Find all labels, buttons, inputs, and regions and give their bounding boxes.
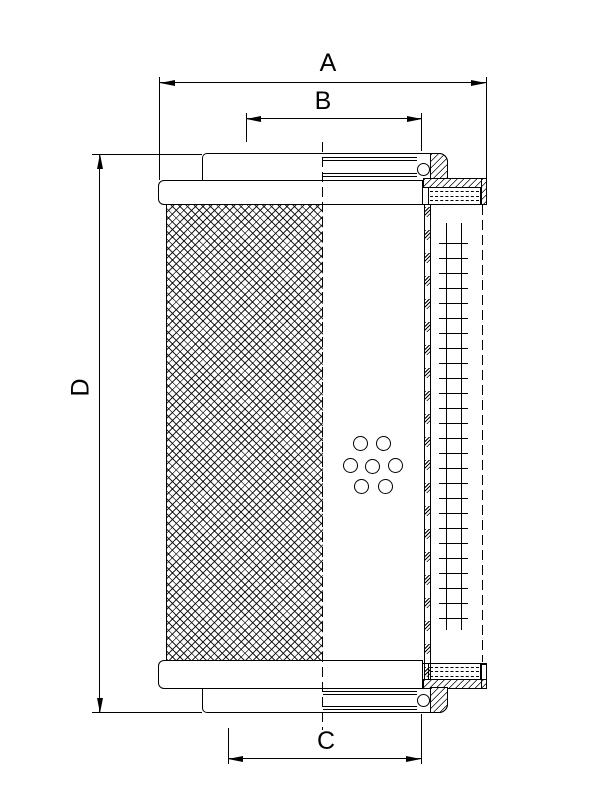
support-tube-rung [439, 423, 468, 424]
bottom-flange-outer-wall [481, 664, 487, 689]
core-wall-segment [425, 391, 430, 401]
hidden-outer-edge [482, 205, 483, 662]
support-tube-rung [439, 288, 468, 289]
bottom-end-cap [158, 660, 423, 689]
support-tube-rung [439, 453, 468, 454]
support-tube-rung [439, 393, 468, 394]
support-tube-rung [439, 333, 468, 334]
core-wall-segment [425, 437, 430, 447]
support-tube-rung [439, 543, 468, 544]
core-wall-segment [425, 552, 430, 562]
centerline [322, 142, 323, 730]
dimension-d-label: D [69, 371, 94, 405]
core-tube-section-strip [424, 204, 431, 680]
support-tube-rung [439, 348, 468, 349]
top-end-cap [158, 180, 423, 205]
support-tube-rung [439, 498, 468, 499]
support-tube-line [461, 223, 462, 630]
groove-line [323, 173, 417, 174]
support-tube-rung [439, 363, 468, 364]
support-tube-rung [439, 303, 468, 304]
core-wall-segment [425, 322, 430, 332]
perforation-hole [353, 436, 368, 451]
support-tube-rung [439, 558, 468, 559]
core-wall-segment [425, 460, 430, 470]
core-wall-segment [425, 621, 430, 631]
perforation-hole [378, 479, 393, 494]
dimension-a-line [160, 82, 486, 83]
extension-line [92, 154, 202, 155]
dimension-d-arrow [97, 698, 103, 713]
dimension-a-label: A [300, 51, 356, 76]
groove-line [323, 176, 417, 177]
dimension-c-arrow [228, 756, 243, 762]
perforation-hole [354, 479, 369, 494]
support-tube-rung [439, 513, 468, 514]
core-wall-segment [425, 483, 430, 493]
core-wall-segment [425, 253, 430, 263]
core-wall-segment [425, 506, 430, 516]
support-tube-rung [439, 618, 468, 619]
extension-line [486, 77, 487, 178]
dimension-d-arrow [97, 154, 103, 169]
core-wall-segment [425, 414, 430, 424]
perforation-hole [388, 458, 403, 473]
extension-line [92, 712, 202, 713]
gasket-dash-line [430, 200, 479, 201]
bottom-o-ring [417, 694, 430, 707]
dimension-b-arrow [246, 116, 261, 122]
extension-line [421, 113, 422, 151]
extension-line [421, 714, 422, 764]
perforation-hole [343, 458, 358, 473]
gasket-dash-line [430, 667, 479, 668]
support-tube-line [446, 223, 447, 630]
gasket-dash-line [430, 671, 479, 672]
groove-line [323, 691, 417, 692]
support-tube-rung [439, 603, 468, 604]
groove-line [323, 706, 417, 707]
gasket-dash-line [430, 191, 479, 192]
core-wall-segment [425, 644, 430, 654]
bottom-cap-section-wall [430, 687, 448, 713]
support-tube-rung [439, 528, 468, 529]
extension-line [228, 728, 229, 764]
dimension-b-label: B [295, 89, 351, 114]
core-wall-segment [425, 276, 430, 286]
core-wall-segment [425, 230, 430, 240]
groove-line [323, 709, 417, 710]
dimension-c-arrow [406, 756, 421, 762]
perforation-hole [376, 436, 391, 451]
core-wall-segment [425, 598, 430, 608]
core-wall-segment [425, 575, 430, 585]
core-wall-segment [425, 368, 430, 378]
dimension-c-line [228, 758, 421, 759]
support-tube-rung [439, 483, 468, 484]
support-tube-rung [439, 318, 468, 319]
support-tube-rung [439, 243, 468, 244]
core-wall-segment [425, 345, 430, 355]
bottom-gasket [428, 664, 481, 679]
groove-line [323, 694, 417, 695]
core-wall-segment [425, 299, 430, 309]
drawing-canvas: A B D C [0, 0, 612, 792]
dimension-b-line [246, 118, 422, 119]
groove-line [323, 157, 417, 158]
support-tube-rung [439, 378, 468, 379]
support-tube-rung [439, 258, 468, 259]
support-tube-rung [439, 468, 468, 469]
filter-media [166, 205, 323, 660]
support-tube-rung [439, 438, 468, 439]
extension-line [246, 113, 247, 142]
top-gasket [428, 188, 481, 204]
core-wall-segment [425, 207, 430, 217]
perforation-hole [365, 459, 380, 474]
support-tube-rung [439, 588, 468, 589]
support-tube-rung [439, 273, 468, 274]
top-o-ring [417, 163, 430, 176]
top-flange-section [423, 178, 487, 188]
dimension-d-line [99, 154, 100, 713]
gasket-dash-line [430, 196, 479, 197]
top-flange-bottom-line [423, 204, 487, 205]
top-flange-outer-wall [481, 178, 487, 205]
support-tube-rung [439, 408, 468, 409]
dimension-a-arrow [160, 80, 175, 86]
extension-line [159, 77, 160, 180]
gasket-dash-line [430, 676, 479, 677]
support-tube-rung [439, 573, 468, 574]
dimension-b-arrow [407, 116, 422, 122]
core-wall-segment [425, 529, 430, 539]
groove-line [323, 160, 417, 161]
dimension-c-label: C [298, 729, 354, 754]
dimension-a-arrow [471, 80, 486, 86]
